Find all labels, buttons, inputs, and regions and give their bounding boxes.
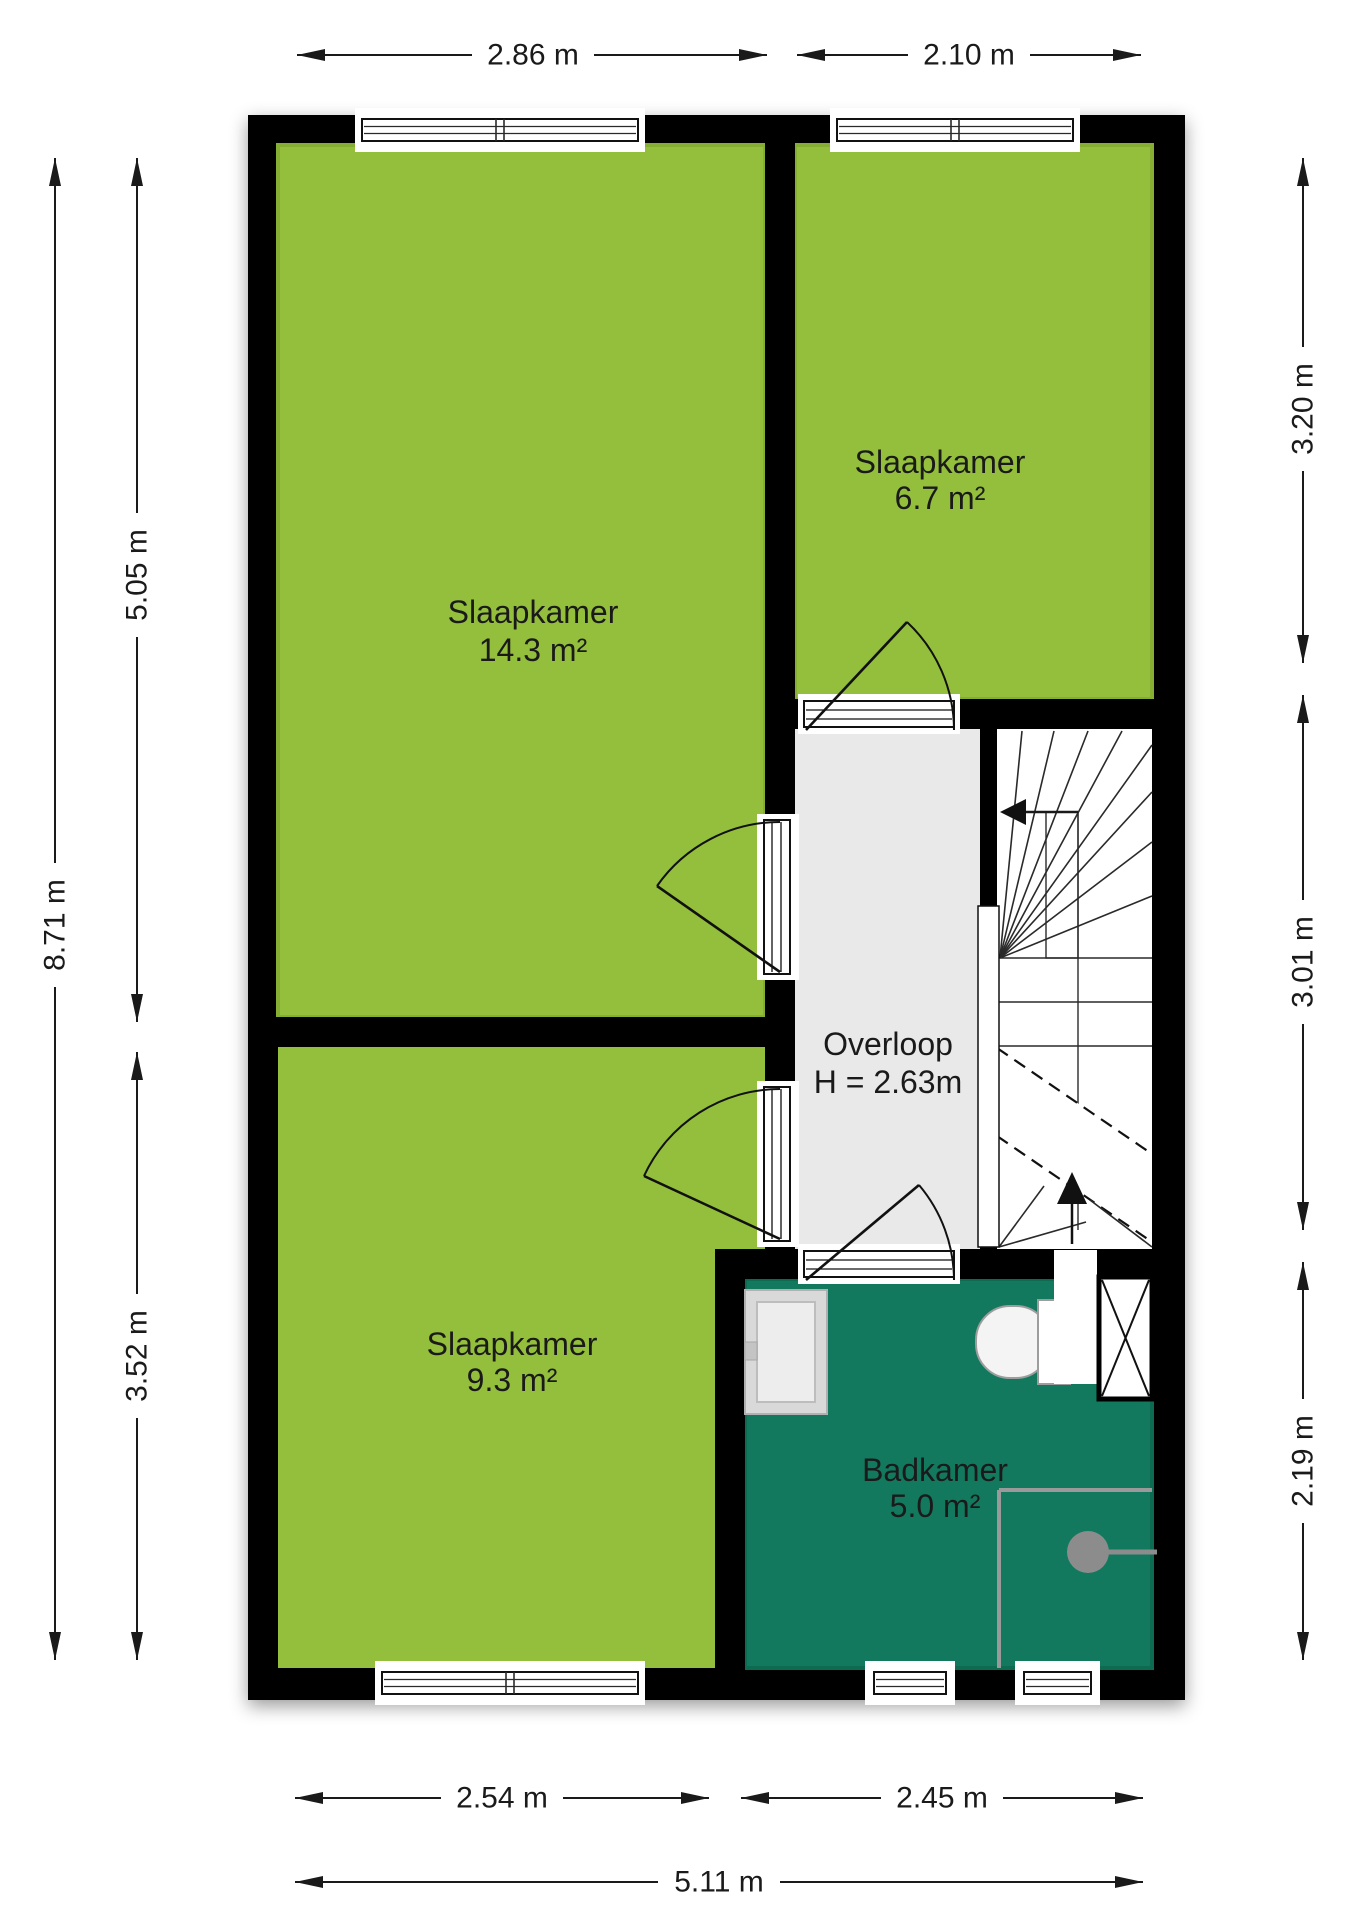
room-floor xyxy=(278,1047,765,1249)
dimension-bottom-right: 2.45 m xyxy=(741,1779,1143,1817)
window-bottom-left xyxy=(375,1661,645,1705)
dimension-label: 3.20 m xyxy=(1287,363,1320,455)
room-overloop: Overloop H = 2.63m xyxy=(795,729,980,1249)
window-top-right xyxy=(830,108,1080,152)
dimension-top-left: 2.86 m xyxy=(297,36,767,74)
shaft xyxy=(1099,1277,1152,1399)
dimension-label: 2.19 m xyxy=(1287,1415,1320,1507)
wall-bedroom-bathroom xyxy=(715,1279,745,1700)
dimension-label: 2.10 m xyxy=(923,39,1015,72)
dimension-label: 5.11 m xyxy=(674,1866,764,1899)
floor-plan: Slaapkamer 14.3 m² Slaapkamer 6.7 m² Sla… xyxy=(0,0,1358,1920)
dimension-left-total: 8.71 m xyxy=(36,158,74,1660)
room-slaapkamer-1: Slaapkamer 14.3 m² xyxy=(278,145,765,1017)
room-floor xyxy=(795,145,1152,699)
room-floor xyxy=(278,1239,715,1668)
room-label: Slaapkamer xyxy=(448,594,619,630)
room-slaapkamer-2: Slaapkamer 6.7 m² xyxy=(795,145,1152,699)
dimension-bottom-left: 2.54 m xyxy=(295,1779,709,1817)
room-label: Slaapkamer xyxy=(855,444,1026,480)
plan-body: Slaapkamer 14.3 m² Slaapkamer 6.7 m² Sla… xyxy=(248,108,1185,1705)
room-area: 6.7 m² xyxy=(895,480,986,516)
room-area: 5.0 m² xyxy=(890,1488,981,1524)
window-bathroom-2 xyxy=(1015,1661,1100,1705)
bathroom-opening xyxy=(1054,1250,1097,1384)
room-floor xyxy=(795,729,980,1249)
room-area: 14.3 m² xyxy=(479,632,588,668)
dimension-bottom-total: 5.11 m xyxy=(295,1863,1143,1901)
dimension-left-upper: 5.05 m xyxy=(118,158,156,1022)
dimension-label: 3.52 m xyxy=(121,1310,154,1402)
dimension-label: 2.54 m xyxy=(456,1782,548,1815)
dimension-label: 8.71 m xyxy=(39,879,72,971)
wall-between-bedrooms xyxy=(248,1017,795,1047)
room-area: 9.3 m² xyxy=(467,1362,558,1398)
dimension-right-middle: 3.01 m xyxy=(1284,695,1322,1230)
sink xyxy=(745,1290,827,1414)
dimension-label: 2.86 m xyxy=(487,39,579,72)
dimension-label: 3.01 m xyxy=(1287,916,1320,1008)
dimension-top-right: 2.10 m xyxy=(797,36,1141,74)
window-top-left xyxy=(355,108,645,152)
window-bathroom-1 xyxy=(865,1661,955,1705)
dimension-right-top: 3.20 m xyxy=(1284,158,1322,663)
shower-head-icon xyxy=(1067,1531,1109,1573)
room-label: Slaapkamer xyxy=(427,1326,598,1362)
dimension-label: 5.05 m xyxy=(121,529,154,621)
dimension-label: 2.45 m xyxy=(896,1782,988,1815)
room-height-note: H = 2.63m xyxy=(814,1064,963,1100)
room-floor xyxy=(278,145,765,1017)
dimension-left-lower: 3.52 m xyxy=(118,1052,156,1660)
room-label: Overloop xyxy=(823,1026,953,1062)
dimension-right-bottom: 2.19 m xyxy=(1284,1262,1322,1660)
room-slaapkamer-3: Slaapkamer 9.3 m² xyxy=(278,1047,765,1668)
stairwell-edge xyxy=(978,906,999,1247)
room-label: Badkamer xyxy=(862,1452,1008,1488)
staircase xyxy=(997,729,1152,1249)
